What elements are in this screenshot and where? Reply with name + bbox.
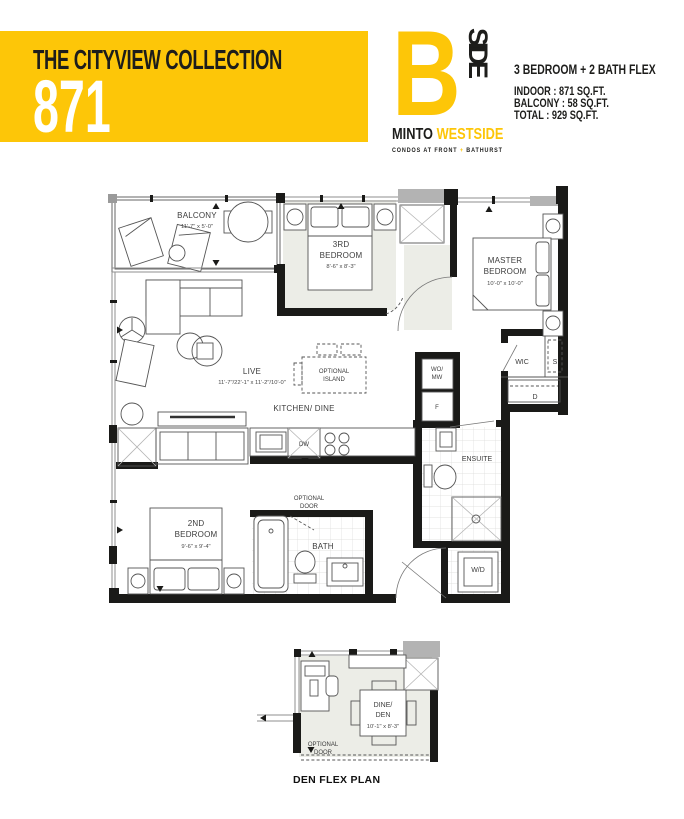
brand-westside: WESTSIDE bbox=[437, 126, 504, 143]
armchair-icon bbox=[116, 339, 154, 386]
wall-oven-microwave-icon bbox=[422, 359, 453, 389]
den-optional-door-label: DOOR bbox=[314, 750, 333, 756]
tv-console-icon bbox=[158, 412, 246, 426]
second-bedroom-dims: 9'-6" x 9'-4" bbox=[181, 544, 210, 550]
second-bedroom bbox=[118, 428, 248, 594]
logo-side-text: SIDE bbox=[462, 28, 493, 124]
den-elevator-shaft bbox=[403, 641, 440, 690]
shelf-label: S bbox=[553, 359, 558, 366]
den-flex-plan: DINE/ DEN 10'-1" x 8'-3" OPTIONAL DOOR D… bbox=[257, 641, 440, 786]
desk-chair-icon bbox=[326, 676, 338, 696]
den-flex-plan-title: DEN FLEX PLAN bbox=[293, 774, 380, 786]
third-bedroom-label: BEDROOM bbox=[320, 251, 363, 260]
dine-den-dims: 10'-1" x 8'-3" bbox=[367, 724, 399, 730]
ensuite-label: ENSUITE bbox=[462, 456, 493, 463]
sink-icon bbox=[436, 428, 456, 451]
third-bedroom-label: 3RD bbox=[333, 240, 350, 249]
entry-door bbox=[396, 548, 446, 598]
optional-door-label: OPTIONAL bbox=[294, 496, 325, 502]
dishwasher-label: DW bbox=[299, 442, 309, 448]
brand-tagline: CONDOS AT FRONT + BATHURST bbox=[392, 147, 496, 154]
side-table-icon bbox=[169, 245, 185, 261]
master-bedroom-dims: 10'-0" x 10'-0" bbox=[487, 281, 523, 287]
master-closets bbox=[501, 336, 568, 402]
sideboard-icon bbox=[349, 655, 406, 668]
live-label: LIVE bbox=[243, 367, 261, 376]
kitchen bbox=[250, 344, 415, 458]
second-bedroom-label: BEDROOM bbox=[175, 530, 218, 539]
microwave-label: MW bbox=[432, 375, 443, 381]
corridor-shade bbox=[404, 245, 452, 330]
dresser-label: D bbox=[532, 394, 537, 401]
balcony bbox=[112, 197, 280, 272]
wall-oven-label: WO/ bbox=[431, 367, 443, 373]
closet bbox=[118, 428, 248, 466]
unit-type: 3 BEDROOM + 2 BATH FLEX bbox=[514, 62, 678, 77]
third-bedroom-dims: 8'-6" x 8'-3" bbox=[326, 264, 355, 270]
unit-number: 871 bbox=[33, 76, 244, 138]
bathtub-icon bbox=[254, 516, 288, 592]
washer-dryer-label: W/D bbox=[471, 567, 485, 574]
balcony-label: BALCONY bbox=[177, 211, 217, 220]
title-banner: THE CITYVIEW COLLECTION 871 bbox=[0, 31, 368, 142]
optional-island-label: ISLAND bbox=[323, 377, 345, 383]
living-area bbox=[116, 280, 246, 426]
floorplan-sheet: BALCONY 11'-7" x 5'-0" 3RD BEDROOM 8'-6"… bbox=[0, 0, 684, 819]
wic-label: WIC bbox=[515, 359, 529, 366]
toilet-icon bbox=[424, 465, 432, 487]
door-leaf bbox=[503, 345, 517, 371]
logo-b-letter: B bbox=[392, 28, 461, 118]
bside-logo: B SIDE MINTO WESTSIDE CONDOS AT FRONT + … bbox=[392, 28, 522, 154]
den-optional-door-label: OPTIONAL bbox=[308, 742, 339, 748]
unit-specs: 3 BEDROOM + 2 BATH FLEX INDOOR : 871 SQ.… bbox=[514, 62, 678, 121]
balcony-dims: 11'-7" x 5'-0" bbox=[181, 224, 213, 230]
live-dims: 11'-7"/22'-1" x 11'-2"/10'-0" bbox=[218, 380, 286, 386]
bath-label: BATH bbox=[312, 542, 334, 551]
patio-table-icon bbox=[224, 202, 272, 242]
toilet-icon bbox=[294, 551, 316, 583]
master-bedroom-label: BEDROOM bbox=[484, 267, 527, 276]
elevator-shaft bbox=[400, 205, 444, 243]
optional-door-label: DOOR bbox=[300, 504, 319, 510]
lounge-chair-icon bbox=[119, 218, 164, 267]
plant-icon bbox=[121, 403, 143, 425]
brand-name: MINTO WESTSIDE bbox=[392, 126, 496, 144]
optional-island-label: OPTIONAL bbox=[319, 369, 350, 375]
main-floor-plan: BALCONY 11'-7" x 5'-0" 3RD BEDROOM 8'-6"… bbox=[108, 186, 568, 603]
dine-den-label: DINE/ bbox=[374, 702, 393, 709]
brand-minto: MINTO bbox=[392, 126, 437, 143]
bed-icon bbox=[150, 508, 222, 594]
master-bedroom-label: MASTER bbox=[488, 256, 523, 265]
ensuite-tile-floor bbox=[422, 427, 501, 541]
second-bedroom-label: 2ND bbox=[188, 519, 205, 528]
kitchen-label: KITCHEN/ DINE bbox=[273, 404, 334, 413]
fridge-label: F bbox=[435, 405, 439, 411]
dine-den-label: DEN bbox=[376, 712, 391, 719]
sink-icon bbox=[327, 558, 363, 586]
total-area: TOTAL : 929 SQ.FT. bbox=[514, 110, 678, 122]
